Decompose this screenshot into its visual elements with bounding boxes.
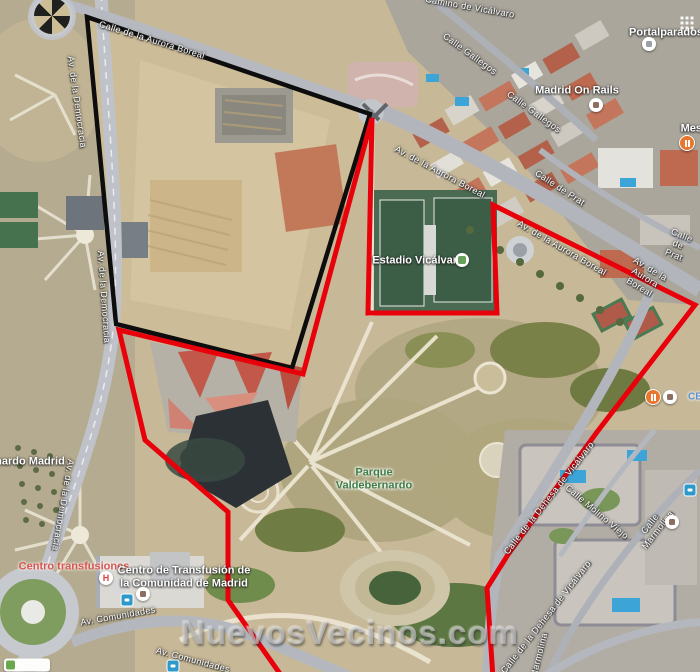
store-icon[interactable] <box>663 390 677 404</box>
stadium-marker-icon[interactable] <box>455 253 469 267</box>
bus-stop-icon[interactable] <box>121 594 134 607</box>
bus-stop-icon[interactable] <box>684 484 697 497</box>
transfusion-marker-icon[interactable] <box>136 587 150 601</box>
restaurant-icon[interactable] <box>679 135 695 151</box>
bus-stop-icon[interactable] <box>167 660 180 672</box>
portalparados-marker-icon[interactable] <box>642 37 656 51</box>
map-chip[interactable] <box>4 659 50 672</box>
apartments-grid-icon <box>681 17 684 20</box>
map-markers-layer: H <box>0 0 700 672</box>
cafe-icon[interactable] <box>665 515 679 529</box>
satellite-map-view[interactable]: Calle de la Aurora BorealAv. de la Democ… <box>0 0 700 672</box>
hospital-icon[interactable]: H <box>99 571 113 585</box>
madrid-on-rails-marker-icon[interactable] <box>589 98 603 112</box>
restaurant-icon[interactable] <box>645 389 661 405</box>
